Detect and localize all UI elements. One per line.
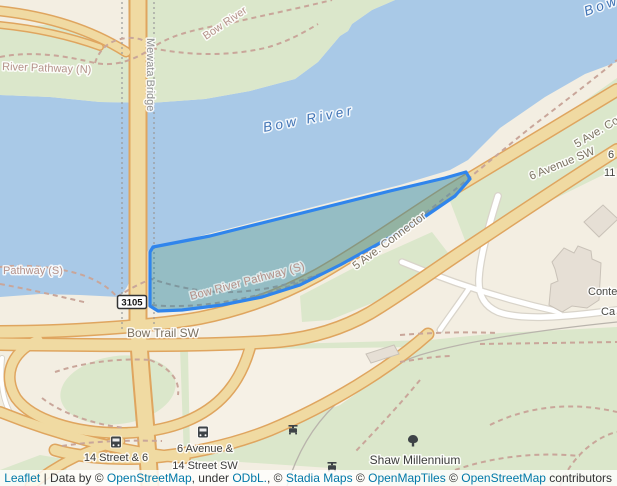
bus-stop-icon <box>197 426 209 439</box>
mewata-bridge-label: Mewata Bridge <box>144 38 156 111</box>
attribution-sep2: , © <box>267 471 283 485</box>
leaflet-link[interactable]: Leaflet <box>4 471 40 485</box>
attribution-contributors: contributors <box>549 471 612 485</box>
openstreetmap-link[interactable]: OpenStreetMap <box>107 471 192 485</box>
bow-trail-sw-label: Bow Trail SW <box>127 326 200 340</box>
shaw-millennium-label: Shaw Millennium <box>370 453 461 467</box>
attribution-bar: Leaflet | Data by © OpenStreetMap, under… <box>0 470 617 486</box>
stop-14-street-label: 14 Street & 6 <box>84 452 148 464</box>
attribution-under: , under <box>192 471 229 485</box>
route-shield-text: 3105 <box>121 298 143 309</box>
pathway-s-partial-label: Pathway (S) <box>3 265 63 277</box>
route-shield: 3105 <box>118 296 147 309</box>
attribution-divider: | <box>44 471 47 485</box>
stop-6-avenue-label-line1: 6 Avenue & <box>177 443 234 455</box>
openstreetmap-link-2[interactable]: OpenStreetMap <box>461 471 546 485</box>
attribution-sep4: © <box>449 471 458 485</box>
map-container[interactable]: 3105 Bow River Bow R River Pathway (N) B… <box>0 0 617 486</box>
edge-fragment-11: 11 <box>604 167 615 179</box>
odbl-link[interactable]: ODbL. <box>232 471 267 485</box>
stadia-maps-link[interactable]: Stadia Maps <box>286 471 353 485</box>
map-tiles: 3105 Bow River Bow R River Pathway (N) B… <box>0 0 617 486</box>
bus-stop-icon <box>110 436 122 449</box>
edge-fragment-6: 6 <box>608 149 614 161</box>
openmaptiles-link[interactable]: OpenMapTiles <box>368 471 446 485</box>
attribution-sep3: © <box>356 471 365 485</box>
edge-fragment-conte: Conte <box>588 286 617 298</box>
edge-fragment-ca: Ca <box>601 306 616 318</box>
attribution-data-by: Data by © <box>50 471 104 485</box>
